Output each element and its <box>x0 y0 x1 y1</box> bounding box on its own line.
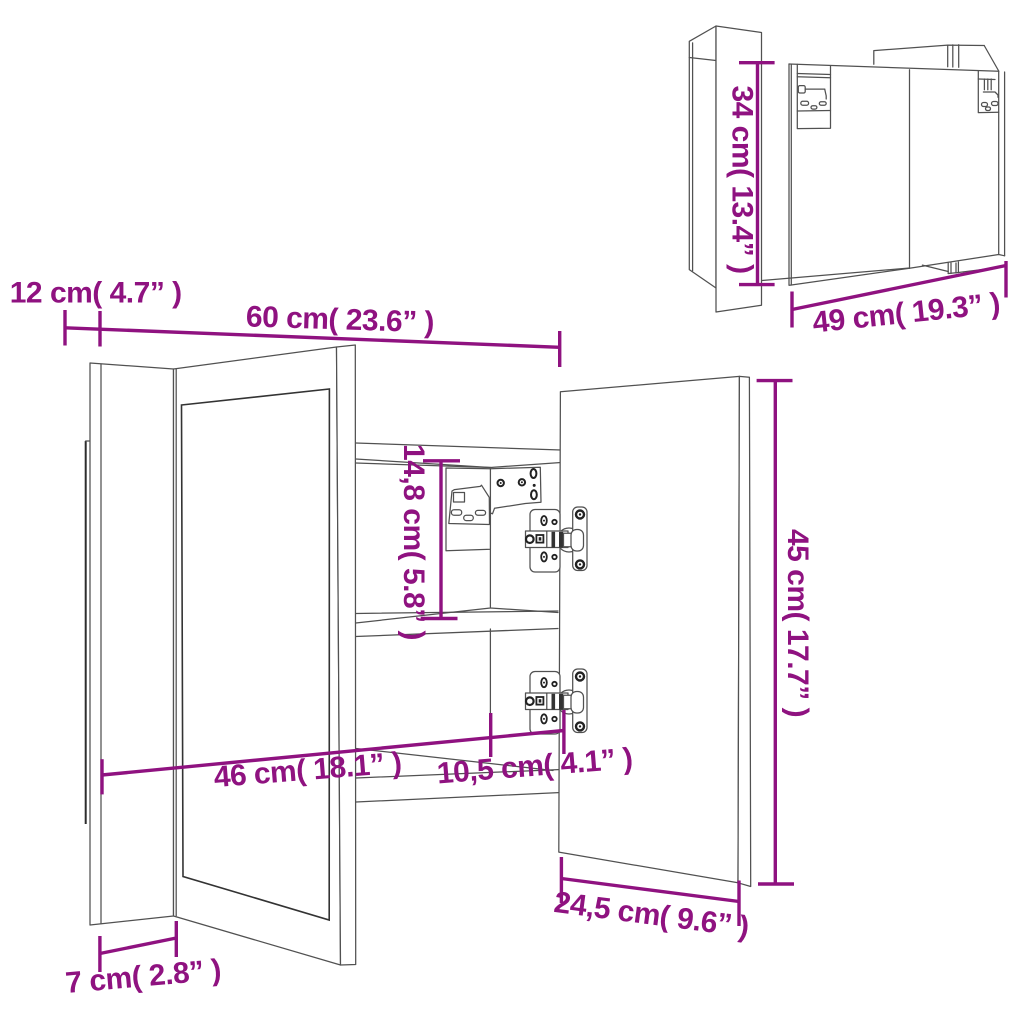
svg-text:34 cm( 13.4” ): 34 cm( 13.4” ) <box>726 85 759 273</box>
svg-text:45 cm( 17.7” ): 45 cm( 17.7” ) <box>781 529 814 717</box>
svg-text:60 cm( 23.6” ): 60 cm( 23.6” ) <box>245 300 434 339</box>
svg-text:12 cm( 4.7” ): 12 cm( 4.7” ) <box>10 277 182 310</box>
svg-text:14,8 cm( 5.8” ): 14,8 cm( 5.8” ) <box>397 444 430 640</box>
